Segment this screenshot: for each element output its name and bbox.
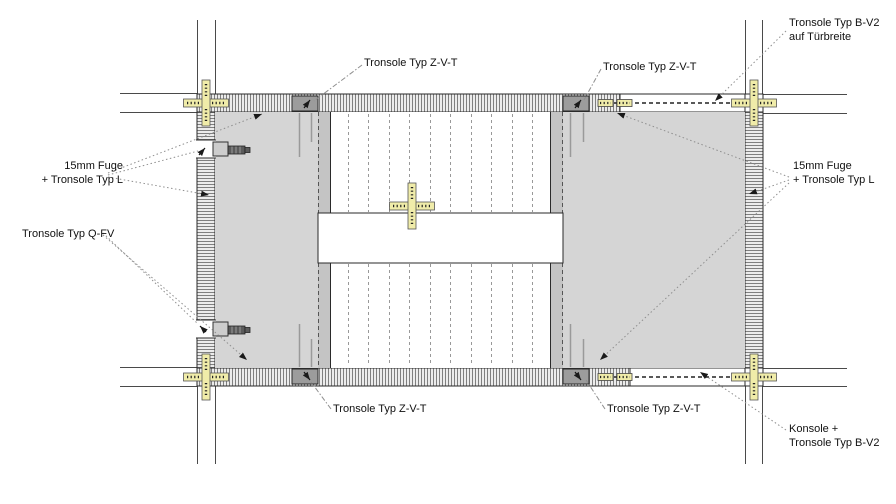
top-wall xyxy=(197,94,620,112)
upper-stair-flight xyxy=(330,112,551,213)
label-line1: 15mm Fuge xyxy=(28,160,123,174)
label-zvt-top-left: Tronsole Typ Z-V-T xyxy=(364,57,458,71)
label-line2: auf Türbreite xyxy=(789,31,880,45)
label-zvt-bottom-left: Tronsole Typ Z-V-T xyxy=(333,403,427,417)
label-bv2-door: Tronsole Typ B-V2 auf Türbreite xyxy=(789,17,880,44)
zvt-block-bottom-left xyxy=(292,369,318,384)
label-qfv: Tronsole Typ Q-FV xyxy=(22,228,114,242)
label-fuge-right: 15mm Fuge + Tronsole Typ L xyxy=(793,160,874,187)
label-zvt-top-right: Tronsole Typ Z-V-T xyxy=(603,61,697,75)
label-zvt-bottom-right: Tronsole Typ Z-V-T xyxy=(607,403,701,417)
stairwell-plan-drawing xyxy=(0,0,896,504)
label-line1: Tronsole Typ B-V2 xyxy=(789,17,880,31)
zvt-block-bottom-right xyxy=(563,369,589,384)
label-line1: 15mm Fuge xyxy=(793,160,874,174)
zvt-block-top-left xyxy=(292,96,318,111)
leader-qfv-a xyxy=(103,233,197,323)
label-line2: + Tronsole Typ L xyxy=(793,174,874,188)
label-text: Tronsole Typ Z-V-T xyxy=(364,57,458,69)
anchor-bolt-lower xyxy=(228,326,250,334)
label-text: Tronsole Typ Z-V-T xyxy=(603,61,697,73)
tronsole-L-plate-upper xyxy=(213,142,228,156)
leader-fuge-left-c xyxy=(108,177,209,195)
label-text: Tronsole Typ Q-FV xyxy=(22,228,114,240)
label-konsole: Konsole + Tronsole Typ B-V2 xyxy=(789,423,880,450)
label-text: Tronsole Typ Z-V-T xyxy=(607,403,701,415)
tronsole-L-plate-lower xyxy=(213,322,228,336)
lower-stair-flight xyxy=(330,263,551,368)
label-line2: Tronsole Typ B-V2 xyxy=(789,437,880,451)
left-wall xyxy=(197,94,215,386)
label-text: Tronsole Typ Z-V-T xyxy=(333,403,427,415)
right-wall xyxy=(745,94,763,386)
anchor-bolt-upper xyxy=(228,146,250,154)
label-line2: + Tronsole Typ L xyxy=(28,174,123,188)
floor-plan-canvas: Tronsole Typ Z-V-T Tronsole Typ Z-V-T Tr… xyxy=(0,0,896,504)
label-fuge-left: 15mm Fuge + Tronsole Typ L xyxy=(28,160,123,187)
intermediate-landing-band xyxy=(318,213,563,263)
label-line1: Konsole + xyxy=(789,423,880,437)
